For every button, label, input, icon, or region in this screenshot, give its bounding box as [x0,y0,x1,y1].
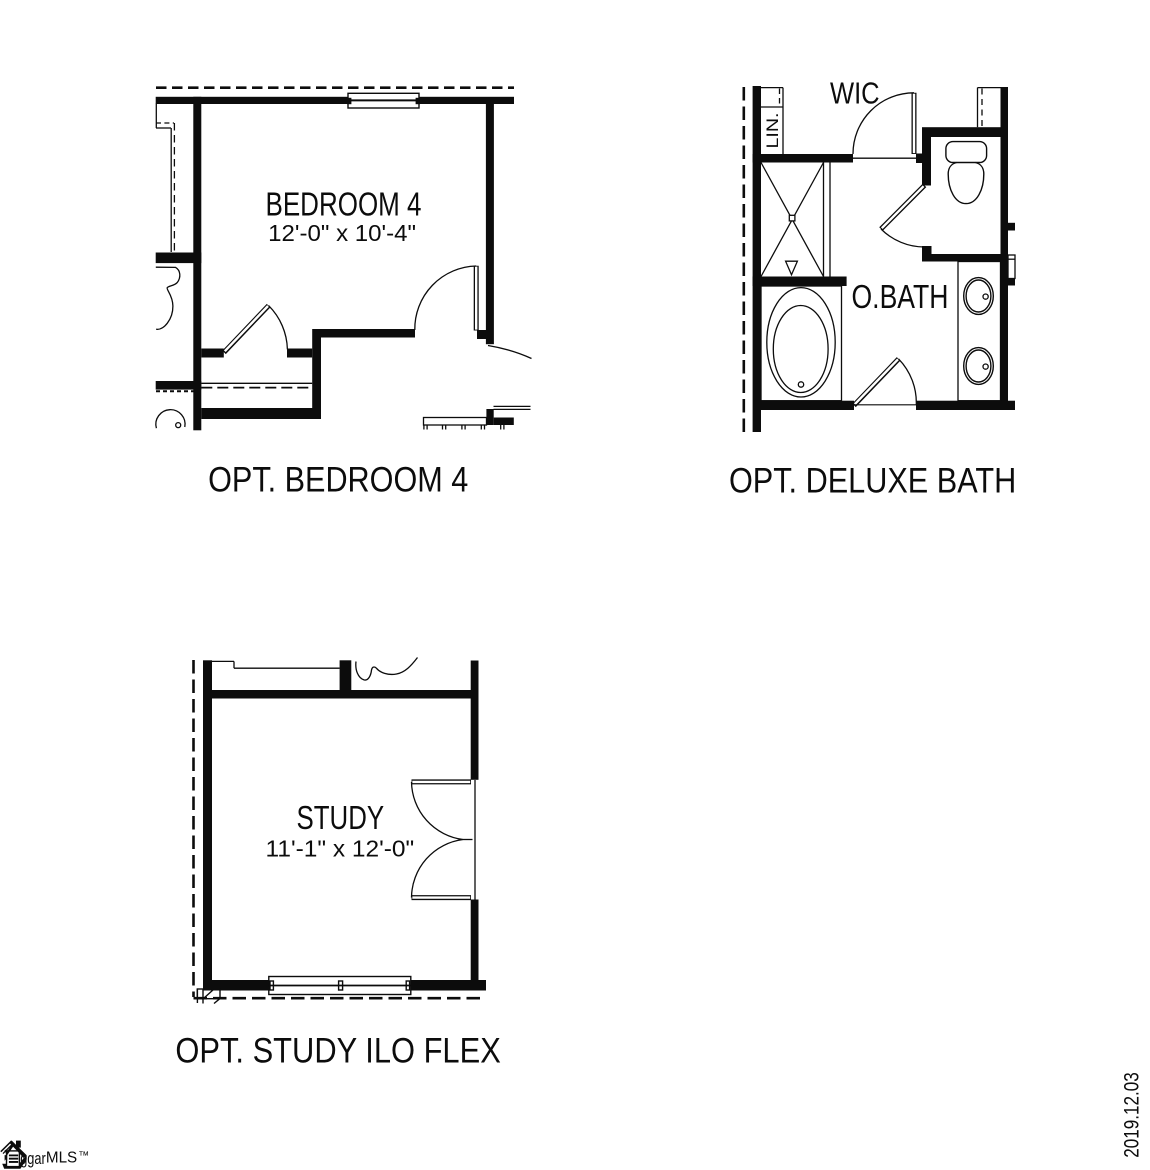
svg-text:O.BATH: O.BATH [852,278,949,315]
svg-text:STUDY: STUDY [297,799,385,836]
svg-text:WIC: WIC [830,75,880,110]
svg-text:ggar: ggar [20,1149,46,1168]
svg-text:BEDROOM 4: BEDROOM 4 [266,185,422,222]
svg-text:LIN.: LIN. [763,113,782,149]
svg-text:2019.12.03: 2019.12.03 [1120,1072,1144,1158]
svg-text:™: ™ [78,1150,89,1162]
svg-text:MLS: MLS [46,1150,77,1167]
svg-text:OPT. DELUXE BATH: OPT. DELUXE BATH [729,462,1016,501]
svg-text:12'-0" x 10'-4": 12'-0" x 10'-4" [268,220,416,246]
svg-text:OPT. BEDROOM 4: OPT. BEDROOM 4 [208,460,468,499]
svg-text:OPT. STUDY ILO FLEX: OPT. STUDY ILO FLEX [175,1031,500,1070]
svg-text:11'-1" x 12'-0": 11'-1" x 12'-0" [266,836,415,862]
